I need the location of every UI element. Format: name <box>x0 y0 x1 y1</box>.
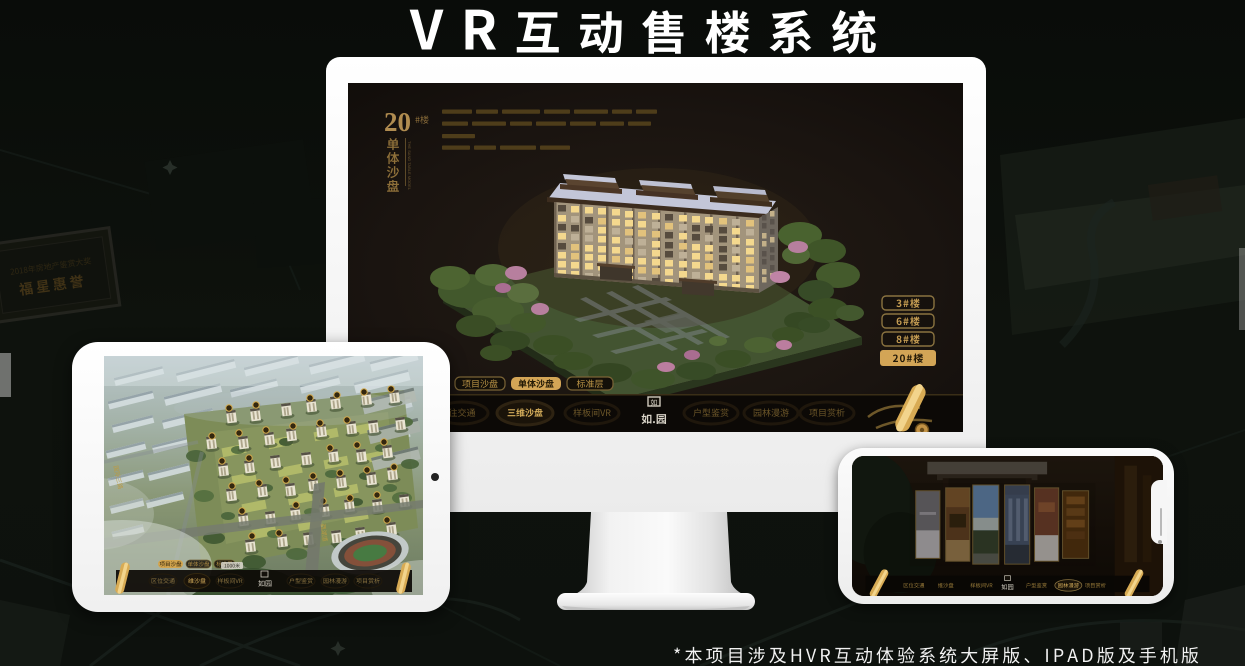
svg-text:20: 20 <box>384 107 411 137</box>
svg-text:THE SAND TABLE MODEL: THE SAND TABLE MODEL <box>407 141 412 191</box>
